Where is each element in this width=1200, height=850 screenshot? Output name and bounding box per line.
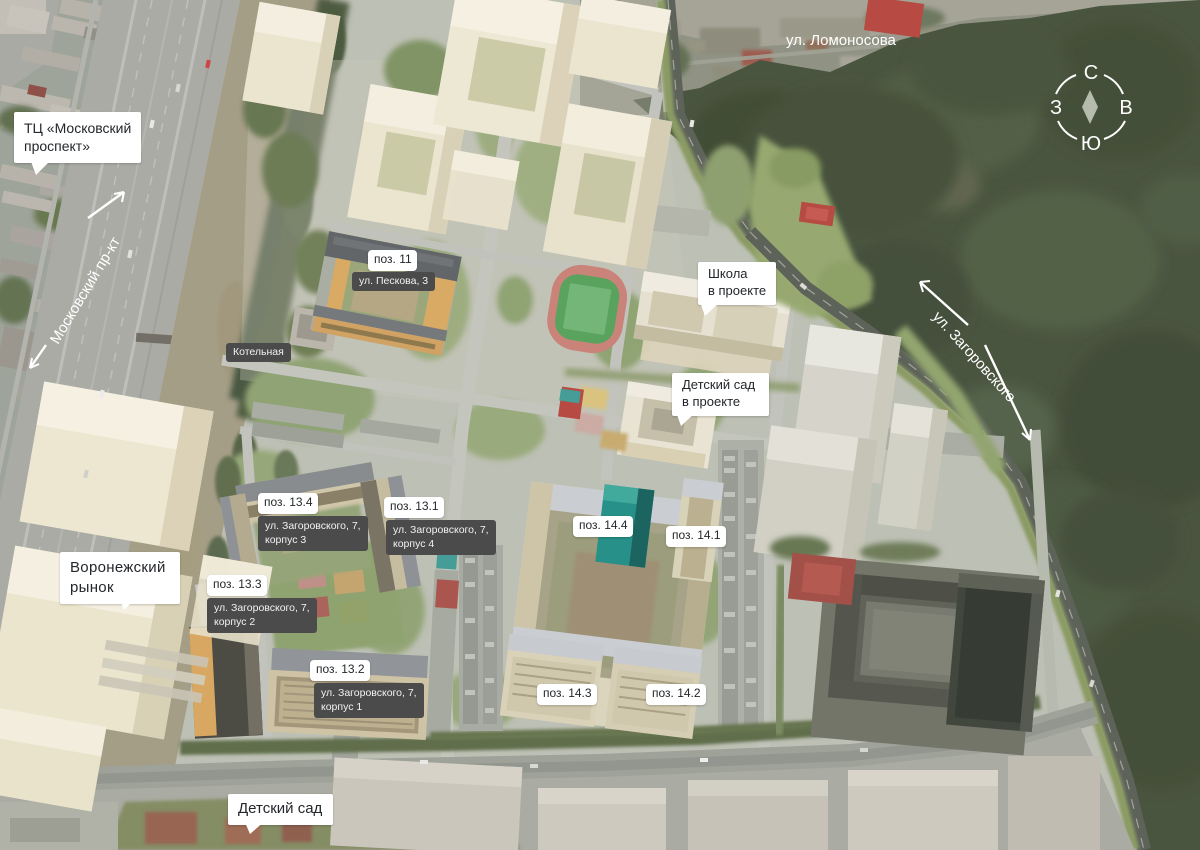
svg-text:Ю: Ю [1081,133,1101,155]
svg-text:ул. Ломоносова: ул. Ломоносова [786,32,897,49]
svg-text:В: В [1119,97,1132,119]
svg-text:З: З [1050,97,1062,119]
svg-text:С: С [1084,62,1098,84]
